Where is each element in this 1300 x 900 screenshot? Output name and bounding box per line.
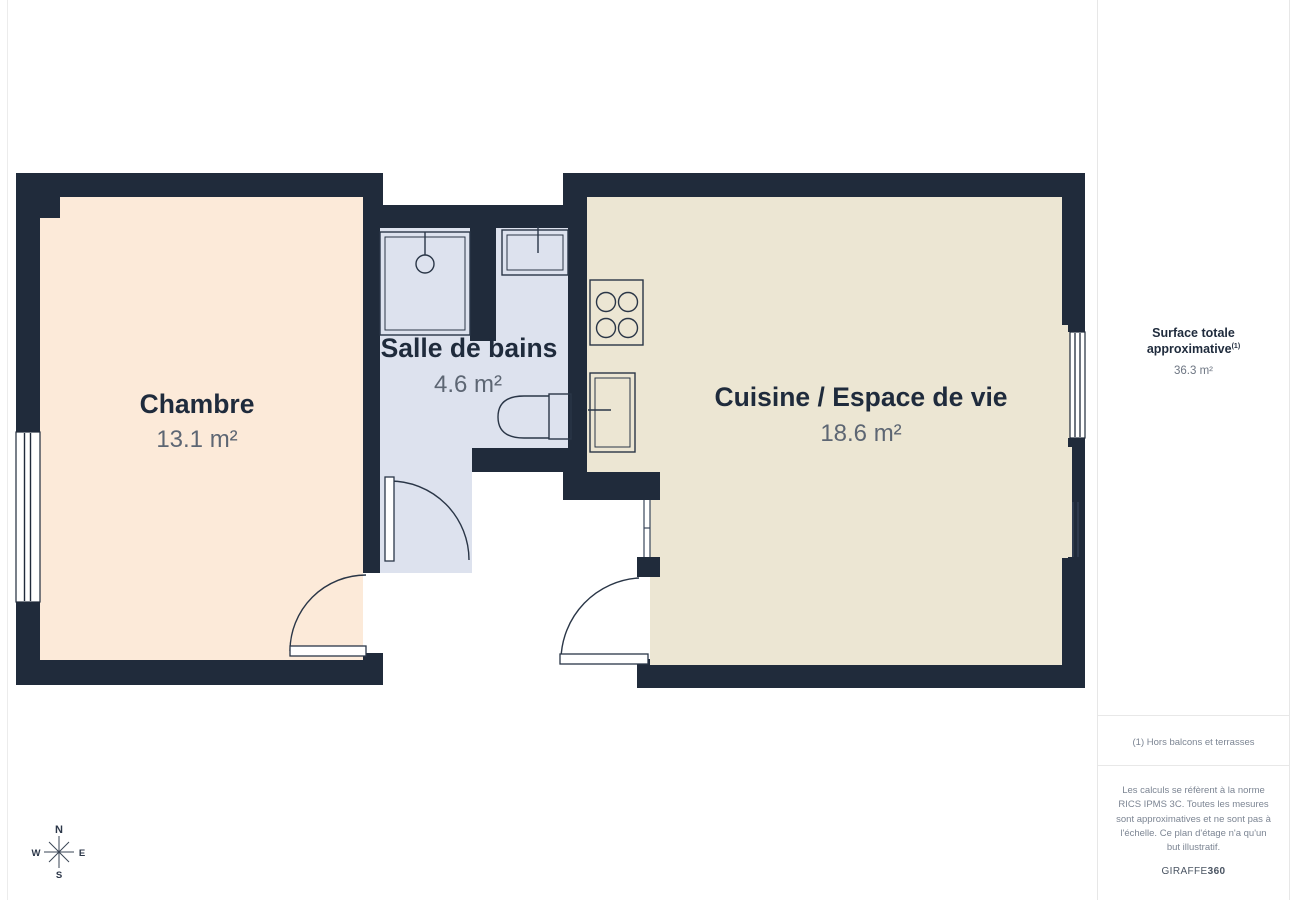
room-label-bedroom: Chambre xyxy=(140,389,255,419)
bedroom-doorway-opening xyxy=(363,573,383,653)
footnote-section: (1) Hors balcons et terrasses xyxy=(1098,715,1289,766)
room-area-bathroom: 4.6 m² xyxy=(434,371,502,398)
brand-name: GIRAFFE xyxy=(1161,866,1207,877)
compass-east: E xyxy=(79,848,85,859)
compass-rose: N S E W xyxy=(32,824,86,881)
total-surface-value: 36.3 m² xyxy=(1098,365,1289,377)
kitchen-top-wall xyxy=(563,173,1085,197)
stove xyxy=(590,280,643,345)
giraffe360-logo: GIRAFFE360 xyxy=(1098,866,1289,877)
door-kitchen xyxy=(560,578,648,664)
floorplan-page: Chambre 13.1 m² Salle de bains 4.6 m² Cu… xyxy=(0,0,1300,900)
glass-panel-kitchen-left xyxy=(644,500,650,557)
footnote-text: (1) Hors balcons et terrasses xyxy=(1098,737,1289,748)
legal-section: Les calculs se réfèrent à la norme RICS … xyxy=(1098,765,1289,900)
compass-south: S xyxy=(56,870,62,881)
total-surface-label-text: Surface totale approximative xyxy=(1147,326,1235,356)
compass-north: N xyxy=(55,824,63,836)
total-surface-label: Surface totale approximative(1) xyxy=(1098,326,1289,357)
bathroom-top-wall xyxy=(363,205,587,228)
room-label-bathroom: Salle de bains xyxy=(381,333,558,363)
info-sidebar: Surface totale approximative(1) 36.3 m² … xyxy=(1097,0,1290,900)
bathroom-bottom-wall xyxy=(472,448,568,472)
compass-west: W xyxy=(32,848,41,859)
room-area-kitchen: 18.6 m² xyxy=(820,420,901,447)
disclaimer-text: Les calculs se réfèrent à la norme RICS … xyxy=(1114,784,1273,855)
total-surface-block: Surface totale approximative(1) 36.3 m² xyxy=(1098,326,1289,377)
room-label-kitchen: Cuisine / Espace de vie xyxy=(714,382,1007,412)
room-area-bedroom: 13.1 m² xyxy=(156,426,237,453)
total-surface-footnote-marker: (1) xyxy=(1232,342,1241,349)
kitchen-door-stub xyxy=(637,557,660,577)
shower-partition-wall xyxy=(470,228,496,341)
window-left xyxy=(16,432,40,602)
kitchen-jog-wall xyxy=(563,472,660,500)
brand-suffix: 360 xyxy=(1208,866,1226,877)
